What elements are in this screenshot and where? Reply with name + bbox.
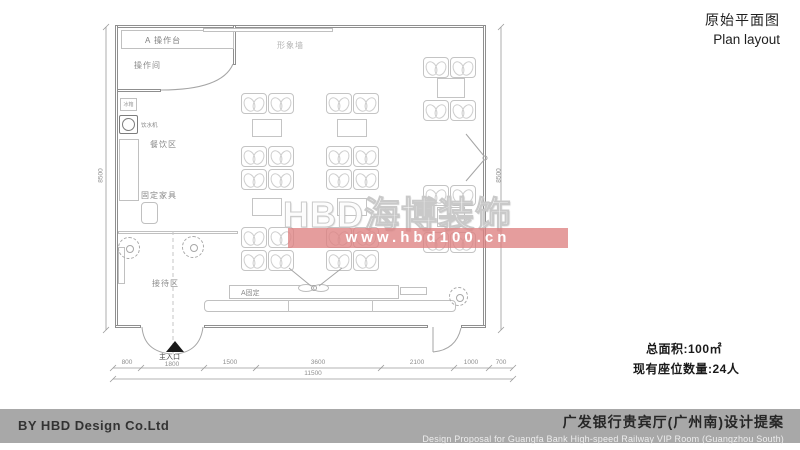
wall-bottom-middle — [204, 325, 428, 328]
footer-bar: BY HBD Design Co.Ltd 广发银行贵宾厅(广州南)设计提案 De… — [0, 409, 800, 443]
fixed-furniture-label: 固定家具 — [141, 190, 177, 201]
dim-1800: 1800 — [165, 361, 179, 368]
sofa-seat — [241, 227, 267, 248]
decor-leaf-right — [313, 284, 329, 292]
dim-right-8500: 8500 — [496, 168, 503, 182]
sofa-seat — [423, 57, 449, 78]
sofa-seat — [423, 100, 449, 121]
sofa-seat — [268, 146, 294, 167]
fixed-counter-label: A固定 — [241, 288, 260, 298]
sofa-seat — [353, 93, 379, 114]
entrance-door-arc-left — [142, 327, 172, 354]
entrance-door-arc-right — [175, 327, 203, 354]
side-table-right — [400, 287, 427, 295]
watermark-url: www.hbd100.cn — [288, 228, 568, 248]
dining-area-label: 餐饮区 — [150, 139, 177, 150]
fridge-label: 冰箱 — [123, 102, 133, 108]
decor-leaf-left — [298, 284, 314, 292]
dim-800: 800 — [122, 359, 133, 366]
dim-2100: 2100 — [410, 359, 424, 366]
reception-counter — [118, 231, 238, 234]
designer-credit: BY HBD Design Co.Ltd — [18, 409, 169, 443]
sofa-seat — [326, 93, 352, 114]
sofa-seat — [241, 93, 267, 114]
entrance-arrow — [166, 341, 184, 352]
sofa-seat — [353, 146, 379, 167]
small-chair — [141, 202, 158, 224]
bench — [204, 300, 456, 312]
sofa-seat — [450, 57, 476, 78]
cabinet-tall — [119, 139, 139, 201]
dim-1000: 1000 — [464, 359, 478, 366]
bench-divider — [288, 300, 289, 312]
project-title-cn: 广发银行贵宾厅(广州南)设计提案 — [422, 412, 784, 432]
water-dispenser-label: 饮水机 — [141, 121, 158, 129]
sofa-seat — [353, 250, 379, 271]
page-title-en: Plan layout — [705, 32, 780, 47]
image-wall-label: 形象墙 — [277, 40, 304, 51]
dim-total-11500: 11500 — [304, 370, 322, 377]
coffee-table — [437, 78, 465, 98]
reception-area-label: 接待区 — [152, 278, 179, 289]
wall-bottom-right — [461, 325, 486, 328]
image-wall — [203, 28, 333, 32]
potted-plant-left — [118, 237, 140, 259]
bottom-right-door-arc — [433, 328, 461, 352]
dim-1500: 1500 — [223, 359, 237, 366]
wall-right — [483, 25, 486, 328]
potted-plant-middle — [182, 236, 204, 258]
dim-3600: 3600 — [311, 359, 325, 366]
right-wall-door-diagonal — [466, 160, 484, 181]
wall-bottom-left — [115, 325, 141, 328]
coffee-table — [252, 119, 282, 137]
sofa-seat — [241, 250, 267, 271]
sofa-seat — [326, 250, 352, 271]
watermark-band: www.hbd100.cn — [288, 228, 568, 248]
potted-plant-bottom-right — [449, 287, 468, 306]
fridge-box: 冰箱 — [120, 98, 137, 111]
operation-room-label: 操作间 — [134, 60, 161, 71]
operation-room-wall-horizontal — [117, 89, 161, 92]
seat-count-text: 现有座位数量:24人 — [633, 360, 739, 377]
water-dispenser — [119, 115, 138, 134]
operation-room-door-arc — [161, 64, 233, 90]
page-title-cn: 原始平面图 — [705, 10, 780, 30]
project-title-en: Design Proposal for Guangfa Bank High-sp… — [422, 434, 784, 444]
sofa-seat — [450, 100, 476, 121]
sofa-seat — [268, 93, 294, 114]
page-title-block: 原始平面图 Plan layout — [705, 10, 780, 47]
sofa-seat — [268, 250, 294, 271]
dim-700: 700 — [496, 359, 507, 366]
right-wall-door-diagonal — [466, 134, 484, 156]
sofa-seat — [241, 169, 267, 190]
total-area-text: 总面积:100㎡ — [646, 340, 722, 357]
coffee-table — [252, 198, 282, 216]
sofa-seat — [326, 146, 352, 167]
dim-left-8500: 8500 — [98, 168, 105, 182]
sofa-seat — [241, 146, 267, 167]
coffee-table — [337, 119, 367, 137]
project-title-block: 广发银行贵宾厅(广州南)设计提案 Design Proposal for Gua… — [422, 412, 784, 444]
bench-divider — [372, 300, 373, 312]
operation-counter-label: A 操作台 — [145, 35, 181, 46]
